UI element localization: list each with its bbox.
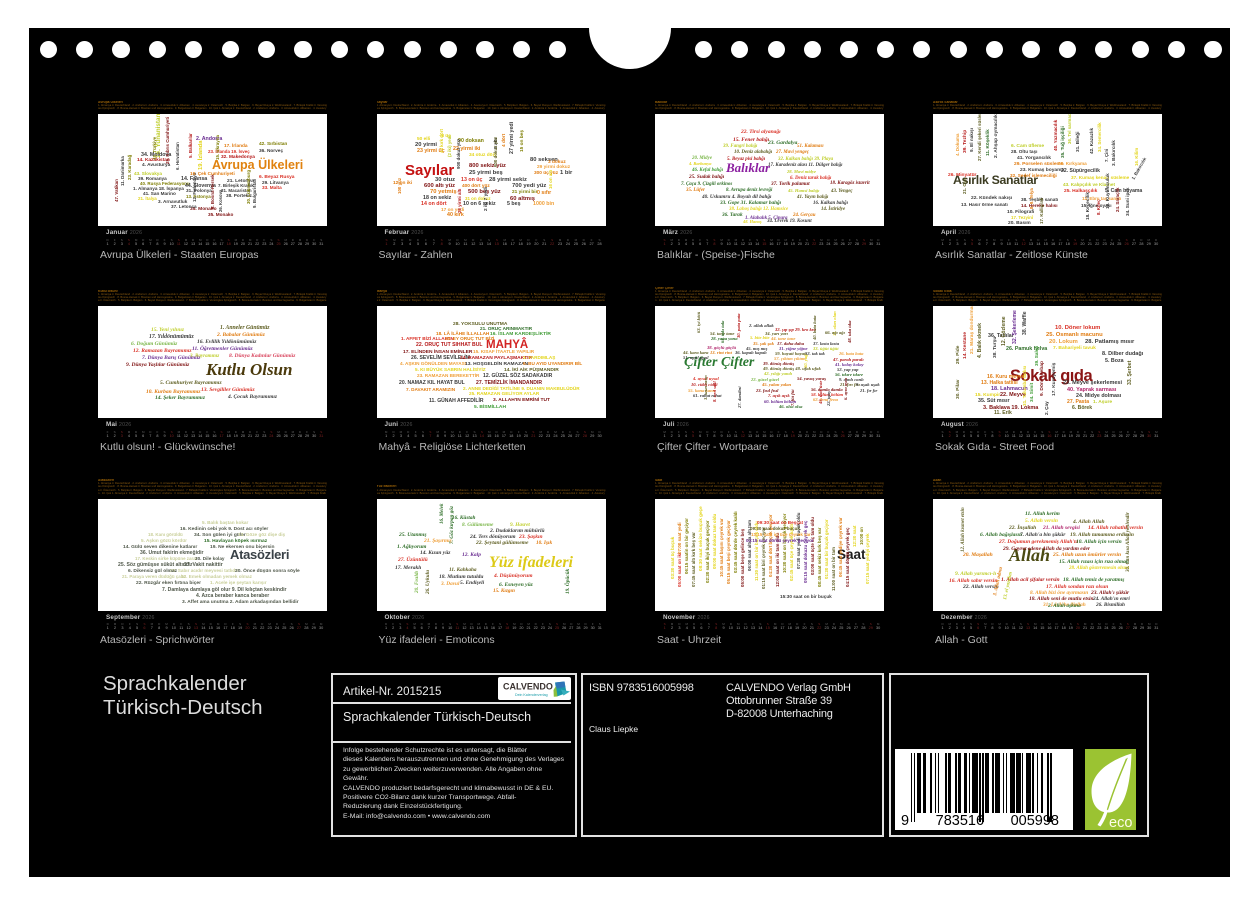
svg-text:2. Babalar Günümüz: 2. Babalar Günümüz <box>216 332 266 338</box>
svg-text:17. Tezyinî: 17. Tezyinî <box>1011 215 1034 220</box>
svg-text:7. füt füt: 7. füt füt <box>790 389 795 406</box>
svg-text:3. Affet ama unutma 2. Adam ar: 3. Affet ama unutma 2. Adam arkadaşından… <box>182 599 299 605</box>
svg-text:7. DAVAKIT ARAMIZIN: 7. DAVAKIT ARAMIZIN <box>406 387 456 392</box>
svg-text:34. Simit: 34. Simit <box>1029 383 1034 403</box>
svg-text:20. Fısıldı: 20. Fısıldı <box>414 570 420 593</box>
svg-text:44 kırk dört: 44 kırk dört <box>439 129 444 153</box>
svg-text:8. Dilber dudağı: 8. Dilber dudağı <box>1102 351 1144 357</box>
svg-text:25. Halkaşçılık: 25. Halkaşçılık <box>1064 188 1098 194</box>
svg-text:2. YARDIMLAŞ: 2. YARDIMLAŞ <box>523 355 555 360</box>
svg-text:08:30 saat sekize buçuk geçe: 08:30 saat sekize buçuk geçe <box>698 506 703 571</box>
svg-text:20. Lokum: 20. Lokum <box>1049 339 1078 345</box>
svg-text:40. bata bata: 40. bata bata <box>812 315 817 341</box>
svg-text:26. Pamuk helva: 26. Pamuk helva <box>1006 346 1047 352</box>
svg-text:06:15 saatin on bir geçiyor: 06:15 saatin on bir geçiyor <box>684 518 689 574</box>
svg-text:800 sekiz yüz: 800 sekiz yüz <box>469 163 506 169</box>
svg-text:31. Polonya: 31. Polonya <box>186 188 212 193</box>
svg-text:4. AŞKIN GÖNÜLDEN MAYASI: 4. AŞKIN GÖNÜLDEN MAYASI <box>400 360 466 366</box>
svg-text:19. Ne ekersen onu biçersin: 19. Ne ekersen onu biçersin <box>210 544 275 550</box>
svg-text:17. Kalligrafi: 17. Kalligrafi <box>1039 198 1044 224</box>
svg-text:700 yedi yüz: 700 yedi yüz <box>512 183 546 189</box>
svg-text:12. GÜZEL SÖZ SADAKADIR: 12. GÜZEL SÖZ SADAKADIR <box>483 372 553 379</box>
svg-text:12. Emek olmadan yemek olmaz: 12. Emek olmadan yemek olmaz <box>181 574 253 579</box>
svg-text:25 yirmi beş: 25 yirmi beş <box>469 170 503 176</box>
svg-text:35. Tuğ işçiliği: 35. Tuğ işçiliği <box>1060 126 1065 158</box>
svg-text:Yüz ifadeleri: Yüz ifadeleri <box>489 554 574 571</box>
svg-text:10. Deniz alabalığı: 10. Deniz alabalığı <box>734 150 773 155</box>
svg-text:7. Göz kırpan göz: 7. Göz kırpan göz <box>449 505 455 544</box>
svg-text:15. Havlayan köpek ısırmaz: 15. Havlayan köpek ısırmaz <box>204 538 268 544</box>
svg-text:30. Can kısa Allah yönlendir: 30. Can kısa Allah yönlendir <box>1125 512 1131 573</box>
svg-text:7. Çini: 7. Çini <box>1104 149 1109 162</box>
svg-text:2. Çay: 2. Çay <box>1044 401 1049 415</box>
svg-text:14. İKİ AİK PÜŞMANDIR: 14. İKİ AİK PÜŞMANDIR <box>504 366 559 373</box>
svg-text:17. Karadeniz alası 11. Dülger: 17. Karadeniz alası 11. Dülger balığı <box>768 163 843 168</box>
svg-text:eco: eco <box>1109 815 1132 830</box>
svg-text:100 yüz: 100 yüz <box>397 177 402 194</box>
svg-text:5. Cumhuriyet Bayramımız: 5. Cumhuriyet Bayramımız <box>160 380 222 386</box>
svg-text:16. Evlilik Yıldönümümüz: 16. Evlilik Yıldönümümüz <box>197 339 257 345</box>
svg-text:5. KI BÜYÜK SABRIN HALİSİYİZ: 5. KI BÜYÜK SABRIN HALİSİYİZ <box>415 366 486 372</box>
svg-text:32. Şekerleme: 32. Şekerleme <box>1012 310 1018 344</box>
svg-text:11. Köşeklik: 11. Köşeklik <box>985 129 990 156</box>
svg-text:39. Salep: 39. Salep <box>1034 346 1039 366</box>
svg-text:2. Allah aşkına: 2. Allah aşkına <box>1047 603 1081 609</box>
svg-text:9. Bulgaristan: 9. Bulgaristan <box>252 178 257 208</box>
svg-text:1000 bin: 1000 bin <box>533 201 554 207</box>
svg-text:39. Fangri balığı: 39. Fangri balığı <box>722 144 758 149</box>
svg-text:18. Kanı görüldü: 18. Kanı görüldü <box>148 532 183 537</box>
svg-text:47. Vatikan: 47. Vatikan <box>114 179 119 202</box>
svg-text:27. Doğumun gerekmemiş Allah't: 27. Doğumun gerekmemiş Allah'ta <box>998 539 1079 545</box>
svg-text:5. bite bite: 5. bite bite <box>750 335 770 340</box>
svg-text:11. Öğretmenler Günümüz: 11. Öğretmenler Günümüz <box>192 345 254 352</box>
svg-text:5. Endişeli: 5. Endişeli <box>460 580 485 586</box>
svg-text:30. pata pata: 30. pata pata <box>736 313 741 339</box>
svg-text:1. Acele işe şeytan karışır: 1. Acele işe şeytan karışır <box>210 580 267 585</box>
svg-text:4. Balık ekmek: 4. Balık ekmek <box>977 323 983 358</box>
svg-text:05:00 saat beşe gelince beş: 05:00 saat beşe gelince beş <box>740 528 745 587</box>
svg-text:26. Minyatür: 26. Minyatür <box>948 172 977 178</box>
svg-text:15 on beş: 15 on beş <box>519 130 525 152</box>
svg-text:12. Finlandiya: 12. Finlandiya <box>192 172 197 202</box>
svg-text:27. dandini: 27. dandini <box>737 386 742 409</box>
svg-text:38. Turşu: 38. Turşu <box>992 337 998 358</box>
svg-text:11. Danimarka: 11. Danimarka <box>120 156 125 186</box>
svg-text:01:30 saat bir buçuk geçiyor: 01:30 saat bir buçuk geçiyor <box>824 519 829 579</box>
svg-text:28. Patlamış mısır: 28. Patlamış mısır <box>1085 339 1135 345</box>
svg-text:22. Tirsi alyanağı: 22. Tirsi alyanağı <box>740 129 781 135</box>
svg-text:17. Yıldönümümüz: 17. Yıldönümümüz <box>149 334 194 340</box>
svg-text:4 dört: 4 dört <box>501 133 507 147</box>
svg-text:6. Doğum Günümüz: 6. Doğum Günümüz <box>131 341 178 347</box>
svg-text:14. Kestane: 14. Kestane <box>962 332 968 359</box>
svg-text:6. aynı aynı: 6. aynı aynı <box>843 378 848 401</box>
svg-text:9. Dünya Yaşlılar Günümüz: 9. Dünya Yaşlılar Günümüz <box>126 362 190 368</box>
svg-text:1. Anneler Günümüz: 1. Anneler Günümüz <box>220 325 270 331</box>
svg-text:40. Yazmacılık: 40. Yazmacılık <box>1053 119 1058 151</box>
svg-text:04:15 saat dördü çeyrek geç: 04:15 saat dördü çeyrek geç <box>845 527 850 587</box>
svg-text:23. Gardalya: 23. Gardalya <box>767 140 798 146</box>
svg-text:7. Dünya Barış Günümüz: 7. Dünya Barış Günümüz <box>142 355 201 361</box>
svg-text:64. takı takı: 64. takı takı <box>720 320 725 343</box>
svg-text:43. üste üste: 43. üste üste <box>818 381 823 405</box>
svg-text:8. Kileç: 8. Kileç <box>1096 199 1101 215</box>
svg-text:18. Karagöz istavrit: 18. Karagöz istavrit <box>830 181 870 186</box>
svg-text:21. fır fır: 21. fır fır <box>859 388 877 393</box>
svg-text:51. Kalaması: 51. Kalaması <box>797 144 824 149</box>
svg-text:24. Gerçau: 24. Gerçau <box>792 213 816 218</box>
svg-text:50 elli: 50 elli <box>417 136 430 142</box>
svg-text:34. Suni ipek: 34. Suni ipek <box>1125 187 1130 216</box>
svg-text:04:15 saat dördü çeyrek geçiyo: 04:15 saat dördü çeyrek geçiyor <box>746 538 814 543</box>
svg-text:30. Kırkyama: 30. Kırkyama <box>1058 161 1087 166</box>
svg-text:20. Maşallah: 20. Maşallah <box>962 552 993 558</box>
svg-text:20. Önce düşün sonra söyle: 20. Önce düşün sonra söyle <box>235 567 300 574</box>
svg-text:18. Allah temiz de yaratmış: 18. Allah temiz de yaratmış <box>1063 577 1124 583</box>
svg-text:32. Kalkan balığı 39. Playa: 32. Kalkan balığı 39. Playa <box>777 157 834 162</box>
svg-text:48. tıka tıka: 48. tıka tıka <box>847 320 852 344</box>
svg-text:27. Üzüntülü: 27. Üzüntülü <box>397 556 428 563</box>
svg-text:35. Monako: 35. Monako <box>208 212 234 217</box>
svg-text:14. Şeker Bayramımız: 14. Şeker Bayramımız <box>155 395 206 401</box>
svg-text:16 on altı: 16 on altı <box>548 170 553 189</box>
svg-text:2. Ahşap oymacılık: 2. Ahşap oymacılık <box>993 114 999 158</box>
svg-text:22. İnşallah: 22. İnşallah <box>1008 523 1036 531</box>
svg-text:28. Allah gösteremesin olsun: 28. Allah gösteremesin olsun <box>1068 565 1129 571</box>
svg-text:4. Düşünüyorum: 4. Düşünüyorum <box>493 573 533 579</box>
svg-text:31. Tulumba tatlısı: 31. Tulumba tatlısı <box>1022 366 1027 406</box>
svg-text:10:00 on: 10:00 on <box>859 527 864 545</box>
svg-text:16. Küstah: 16. Küstah <box>452 515 475 521</box>
svg-text:07:15 saat yediyi çeyrek: 07:15 saat yediyi çeyrek <box>865 533 870 584</box>
svg-text:20. Basım: 20. Basım <box>1008 220 1031 226</box>
svg-text:48. Hanoş: 48. Hanoş <box>742 219 762 224</box>
svg-text:1 bir: 1 bir <box>560 170 573 176</box>
svg-text:3. Bakırcılık: 3. Bakırcılık <box>1111 140 1116 166</box>
svg-text:09:30 saat on Beşçat: 09:30 saat on Beşçat <box>757 520 804 525</box>
svg-text:26. Uykulu: 26. Uykulu <box>425 570 431 595</box>
svg-text:20. NAMAZ KIL HAYAT BUL: 20. NAMAZ KIL HAYAT BUL <box>399 380 465 386</box>
svg-text:5 beş: 5 beş <box>507 201 521 207</box>
svg-text:13. rint rint: 13. rint rint <box>710 350 733 355</box>
svg-text:9. Döner kebap: 9. Döner kebap <box>1039 361 1045 396</box>
svg-text:8. sırıl sırıl: 8. sırıl sırıl <box>712 381 717 402</box>
svg-text:66. ağı ağı: 66. ağı ağı <box>825 330 846 335</box>
svg-text:16. İSLAM KARDEŞLİKTİR: 16. İSLAM KARDEŞLİKTİR <box>490 330 551 337</box>
svg-text:8. Avrupa deniz levreği: 8. Avrupa deniz levreği <box>726 188 773 193</box>
svg-text:37. Torik palamut: 37. Torik palamut <box>770 181 810 187</box>
svg-text:13. HOŞGELDİN RAMAZAN: 13. HOŞGELDİN RAMAZAN <box>465 360 529 367</box>
svg-text:27. Mavi yengeç: 27. Mavi yengeç <box>775 150 810 155</box>
svg-text:26. bata bata: 26. bata bata <box>838 351 864 356</box>
svg-text:19. Kuyumculuk: 19. Kuyumculuk <box>1105 173 1110 209</box>
svg-text:26. Bismillah: 26. Bismillah <box>1095 602 1125 608</box>
svg-text:10:45 saat başını çeyrek var: 10:45 saat başını çeyrek var <box>719 518 724 577</box>
svg-text:25. Sudak balığı: 25. Sudak balığı <box>688 174 725 180</box>
svg-text:33. Malta: 33. Malta <box>262 185 282 190</box>
svg-text:15. KISAF İTAATLE YAPILIR: 15. KISAF İTAATLE YAPILIR <box>473 348 535 354</box>
svg-text:3. Davul: 3. Davul <box>440 581 460 587</box>
svg-text:19. İzlanda: 19. İzlanda <box>197 140 204 170</box>
svg-text:14. Kızan yüz: 14. Kızan yüz <box>420 550 451 556</box>
svg-text:32. Sedef işlemeciliği: 32. Sedef işlemeciliği <box>1010 173 1057 178</box>
svg-text:02:30 saat ikiyi buçuk geçiyor: 02:30 saat ikiyi buçuk geçiyor <box>705 520 710 583</box>
svg-text:2. allak allak: 2. allak allak <box>748 323 774 328</box>
svg-text:16. Melek: 16. Melek <box>439 503 445 524</box>
svg-text:34. Levrek 19. Kosunt: 34. Levrek 19. Kosunt <box>766 219 812 224</box>
svg-text:25. Osmanlı macunu: 25. Osmanlı macunu <box>1046 332 1103 338</box>
svg-text:4. Azca beraber kanca beraber: 4. Azca beraber kanca beraber <box>196 593 269 599</box>
svg-text:36. Tel sarmacılığı: 36. Tel sarmacılığı <box>1067 114 1072 144</box>
svg-text:13:15 saat içi üçe çeyrek var: 13:15 saat içi üçe çeyrek var <box>751 532 811 537</box>
svg-text:2. ANNE DEDİĞİ TATİLİNE 9. DUA: 2. ANNE DEDİĞİ TATİLİNE 9. DUANIN MAKBUL… <box>463 384 580 391</box>
svg-text:13 on üç: 13 on üç <box>461 177 483 183</box>
svg-text:17. Meraklı: 17. Meraklı <box>395 565 422 571</box>
svg-text:11. Kahkaha: 11. Kahkaha <box>449 567 477 573</box>
svg-text:21. Maraş dondurması: 21. Maraş dondurması <box>969 306 975 354</box>
svg-text:Dein Kalenderverlag: Dein Kalenderverlag <box>515 693 548 697</box>
svg-text:5. Cam boyama: 5. Cam boyama <box>1105 188 1142 194</box>
svg-text:51. upul upul: 51. upul upul <box>683 355 709 360</box>
svg-text:03:30 saat üç buçuk: 03:30 saat üç buçuk <box>670 536 675 579</box>
svg-text:600 dokuz yüz: 600 dokuz yüz <box>493 136 498 167</box>
svg-text:21. Allah sevgisi: 21. Allah sevgisi <box>1042 525 1080 531</box>
svg-text:36. kapalı kapalı: 36. kapalı kapalı <box>734 350 767 355</box>
svg-text:900 dokuz yüz: 900 dokuz yüz <box>456 138 461 169</box>
svg-text:5. BİSMİLLAH: 5. BİSMİLLAH <box>474 403 506 410</box>
svg-text:28. Mavi midye: 28. Mavi midye <box>786 169 816 174</box>
svg-text:5. Beyaz pisi balığı: 5. Beyaz pisi balığı <box>727 157 766 162</box>
svg-text:31. Bileği: 31. Bileği <box>1075 132 1080 152</box>
svg-text:4. Dokuma: 4. Dokuma <box>955 133 960 156</box>
svg-text:32. Makedonya: 32. Makedonya <box>221 154 255 160</box>
svg-text:6. Börek: 6. Börek <box>1072 405 1092 411</box>
svg-text:36. Norveç: 36. Norveç <box>259 148 283 154</box>
svg-text:16. Kilim: 16. Kilim <box>1134 148 1139 166</box>
svg-text:5. Boza: 5. Boza <box>1105 358 1124 364</box>
svg-text:6. Hırvatistan: 6. Hırvatistan <box>175 142 180 170</box>
svg-text:07:45 saat altı kırk beş var: 07:45 saat altı kırk beş var <box>691 532 696 587</box>
svg-text:22. tıpış: 22. tıpış <box>826 391 831 407</box>
svg-text:23. RAMAZAN BEREKETTİR: 23. RAMAZAN BEREKETTİR <box>417 372 480 378</box>
svg-text:42. yılığı yandı: 42. yılığı yandı <box>763 371 793 376</box>
svg-text:15. Kızgın: 15. Kızgın <box>493 588 515 594</box>
svg-text:21. Paraya veren düdüğü çalar: 21. Paraya veren düdüğü çalar <box>122 574 186 579</box>
svg-text:41. Yayın balığı: 41. Yayın balığı <box>796 195 829 200</box>
svg-text:25. Kıbrıs Cumhuriyeti: 25. Kıbrıs Cumhuriyeti <box>165 117 170 164</box>
svg-text:03:45 saat dörde çeyrek kaldı: 03:45 saat dörde çeyrek kaldı <box>733 511 738 573</box>
svg-text:7. Çaça 9. Çizgili orkinos: 7. Çaça 9. Çizgili orkinos <box>681 182 732 187</box>
svg-text:10. Allah için versin: 10. Allah için versin <box>1076 539 1122 545</box>
svg-text:12 on iki: 12 on iki <box>393 180 412 186</box>
svg-text:07:00 saat yedi: 07:00 saat yedi <box>677 522 682 554</box>
svg-text:17. Keskin sirke küpüne zarar: 17. Keskin sirke küpüne zarar <box>135 556 198 561</box>
svg-text:30. EY ORUÇ TUT BİZİ: 30. EY ORUÇ TUT BİZİ <box>445 335 494 341</box>
svg-text:52. tak tak: 52. tak tak <box>805 351 826 356</box>
svg-text:4. Barbunya: 4. Barbunya <box>688 161 712 166</box>
svg-text:36. Tarak: 36. Tarak <box>721 212 743 218</box>
svg-text:45. yalan yalan: 45. yalan yalan <box>761 382 792 387</box>
svg-text:7. açık açık: 7. açık açık <box>768 393 790 398</box>
svg-text:14. İstiridye: 14. İstiridye <box>821 206 846 212</box>
svg-text:09:00 saat dokuz tam oldu: 09:00 saat dokuz tam oldu <box>712 513 717 569</box>
svg-text:63. iyi kötü: 63. iyi kötü <box>696 312 701 334</box>
svg-text:12. Allah kısmet etsin: 12. Allah kısmet etsin <box>960 507 966 552</box>
svg-text:28. Oltu taşı: 28. Oltu taşı <box>1011 149 1037 154</box>
svg-text:35. Lüfer: 35. Lüfer <box>685 188 705 193</box>
svg-text:5. Aşkın gözü kördür: 5. Aşkın gözü kördür <box>141 538 187 543</box>
svg-text:45. Türkiye: 45. Türkiye <box>152 136 157 160</box>
svg-text:35. Süt mısır: 35. Süt mısır <box>978 398 1010 404</box>
svg-text:5. Allah versin: 5. Allah versin <box>1025 518 1058 524</box>
svg-text:16. Kalkan balığı: 16. Kalkan balığı <box>813 201 849 206</box>
svg-text:22. Şeytani gülümseme: 22. Şeytani gülümseme <box>475 540 529 546</box>
svg-text:3. uzun uzun: 3. uzun uzun <box>703 375 708 401</box>
svg-text:11. GÜNAH AFFEDİLİR: 11. GÜNAH AFFEDİLİR <box>429 397 484 404</box>
svg-text:12. Ramazan Bayramımız: 12. Ramazan Bayramımız <box>133 348 192 354</box>
svg-text:7. Allah'a bin şükür: 7. Allah'a bin şükür <box>1020 532 1066 538</box>
svg-text:9. uşak uşak: 9. uşak uşak <box>856 382 880 387</box>
svg-text:22. Rüzgâr eken fırtına biçer: 22. Rüzgâr eken fırtına biçer <box>136 580 201 586</box>
svg-text:27. TEMİZLİK İMANDANDIR: 27. TEMİZLİK İMANDANDIR <box>476 379 542 386</box>
svg-text:CALVENDO: CALVENDO <box>503 682 553 692</box>
svg-text:12. Kalp: 12. Kalp <box>462 552 481 558</box>
svg-text:37. Kumaş kenarı süsleme: 37. Kumaş kenarı süsleme <box>1071 175 1130 180</box>
svg-text:39. Tezhip: 39. Tezhip <box>962 130 968 153</box>
svg-text:41. Yorgancılık: 41. Yorgancılık <box>1017 155 1051 161</box>
svg-text:Kutlu Olsun: Kutlu Olsun <box>205 360 292 379</box>
svg-text:15. Fener balığı: 15. Fener balığı <box>733 137 770 143</box>
svg-text:26 yirmi altı: 26 yirmi altı <box>457 189 462 213</box>
svg-text:14 on dört: 14 on dört <box>421 201 447 207</box>
svg-text:17. İrlanda: 17. İrlanda <box>224 142 248 149</box>
svg-text:33. Gope 31. Kalamar balığı: 33. Gope 31. Kalamar balığı <box>719 200 782 206</box>
svg-text:05:00 saat on iki: 05:00 saat on iki <box>677 553 682 587</box>
svg-text:8. 9. Telya: 8. 9. Telya <box>1029 188 1034 209</box>
svg-text:13. Göze göz dişe diş: 13. Göze göz dişe diş <box>238 532 286 537</box>
svg-text:14. Allah rahatlık versin: 14. Allah rahatlık versin <box>1088 525 1143 531</box>
svg-text:17. Kuruyemiş: 17. Kuruyemiş <box>1051 363 1057 397</box>
svg-text:11. Erik: 11. Erik <box>994 410 1012 416</box>
svg-text:10 on 6 sekiz: 10 on 6 sekiz <box>463 201 496 207</box>
svg-text:10. Işık: 10. Işık <box>536 540 552 546</box>
svg-text:19. Öpücük: 19. Öpücük <box>564 568 571 594</box>
svg-text:23. Meyve şekerlemesi: 23. Meyve şekerlemesi <box>1063 380 1122 386</box>
svg-text:09:30 saat dokuz buçuk: 09:30 saat dokuz buçuk <box>750 526 800 531</box>
svg-text:18. Keçecilik: 18. Keçecilik <box>1085 192 1090 220</box>
svg-text:09:15 saat dokuzu çeyrek geç: 09:15 saat dokuzu çeyrek geç <box>803 520 808 583</box>
svg-text:4. Çocuk Bayramımız: 4. Çocuk Bayramımız <box>227 394 278 400</box>
svg-text:30. Lüksemburg: 30. Lüksemburg <box>246 170 251 204</box>
svg-text:54. yavaş yavaş: 54. yavaş yavaş <box>797 376 826 381</box>
svg-text:21. Şaşırmış: 21. Şaşırmış <box>423 538 452 544</box>
svg-text:21. İtalya: 21. İtalya <box>138 195 157 201</box>
svg-text:12. Gözleme: 12. Gözleme <box>1001 317 1007 347</box>
svg-text:22. ORUÇ TUT SIHHAT BUL: 22. ORUÇ TUT SIHHAT BUL <box>416 342 483 348</box>
svg-text:30. Pilav: 30. Pilav <box>955 380 961 400</box>
svg-text:10. Çek Cumhuriyeti: 10. Çek Cumhuriyeti <box>190 171 235 176</box>
svg-text:11. Allah kerim: 11. Allah kerim <box>1025 511 1061 517</box>
svg-text:05:15 saat beşi çeyrek geçiyor: 05:15 saat beşi çeyrek geçiyor <box>726 520 731 584</box>
svg-text:21 yirmi bir: 21 yirmi bir <box>512 189 538 195</box>
svg-text:12:30 saat: 12:30 saat <box>852 525 857 547</box>
svg-text:42. Sırbistan: 42. Sırbistan <box>259 141 287 147</box>
svg-text:33. Şerbet: 33. Şerbet <box>1127 361 1133 386</box>
svg-text:13. Hasır örme sanatı: 13. Hasır örme sanatı <box>961 202 1008 207</box>
svg-text:6. Allah bağışlasın: 6. Allah bağışlasın <box>980 532 1022 538</box>
svg-text:24. Saraçlık: 24. Saraçlık <box>1115 187 1120 212</box>
svg-text:03:00 saat üçte üç tam oldu: 03:00 saat üçte üç tam oldu <box>810 517 815 575</box>
svg-text:15. Yeni yılınız: 15. Yeni yılınız <box>151 327 185 333</box>
svg-text:10. Döner lokum: 10. Döner lokum <box>1055 325 1100 331</box>
svg-text:27 yirmi yedi: 27 yirmi yedi <box>509 121 515 154</box>
svg-text:27. Kendi şekeri süslemeciliği: 27. Kendi şekeri süslemeciliği <box>977 114 982 161</box>
svg-text:5. Balık baştan kokar: 5. Balık baştan kokar <box>202 520 249 525</box>
svg-text:9. El nakışı: 9. El nakışı <box>969 128 974 152</box>
svg-text:9. Allah yarımcı-lı: 9. Allah yarımcı-lı <box>955 571 997 577</box>
svg-text:6. BU AYID UYANDIRIR BİL: 6. BU AYID UYANDIRIR BİL <box>523 360 582 366</box>
svg-text:29. Porselen süsleme: 29. Porselen süsleme <box>1014 161 1064 167</box>
svg-text:1. Aşure: 1. Aşure <box>1093 399 1112 405</box>
svg-text:06:45 saat yediye çeyrek var: 06:45 saat yediye çeyrek var <box>838 517 843 577</box>
svg-text:38. Waffle: 38. Waffle <box>1022 312 1028 336</box>
svg-text:(2 iki) yedi: (2 iki) yedi <box>447 135 452 157</box>
svg-text:42. Kazazlık: 42. Kazazlık <box>1089 127 1094 154</box>
svg-text:43. Yengeç: 43. Yengeç <box>830 189 853 194</box>
svg-text:08:45 saat sekiz kırk beş var: 08:45 saat sekiz kırk beş var <box>817 527 822 587</box>
svg-text:300 üç yüz: 300 üç yüz <box>534 170 559 176</box>
svg-text:22. Süpürgecilik: 22. Süpürgecilik <box>1061 168 1100 174</box>
svg-text:25. RAMAZAN GELİYOR AYLAR: 25. RAMAZAN GELİYOR AYLAR <box>469 390 540 396</box>
svg-text:8. Dünya Kadınlar Günümüz: 8. Dünya Kadınlar Günümüz <box>229 353 296 359</box>
svg-text:2 iki 7 yedi: 2 iki 7 yedi <box>483 187 489 211</box>
svg-text:11:00 saat on bir tam: 11:00 saat on bir tam <box>831 547 836 591</box>
svg-text:17. ELİNDEN İNSAN EMİNLER: 17. ELİNDEN İNSAN EMİNLER <box>403 348 473 355</box>
svg-text:29. Pide: 29. Pide <box>955 346 961 365</box>
svg-text:90 doksan: 90 doksan <box>458 138 484 144</box>
svg-text:24. RAMAZAN PAYLAŞMAKTIR: 24. RAMAZAN PAYLAŞMAKTIR <box>460 355 533 361</box>
svg-text:37. Letonca: 37. Letonca <box>171 204 197 209</box>
svg-text:5. Balkanlar: 5. Balkanlar <box>188 133 193 158</box>
svg-text:34. Semercilik: 34. Semercilik <box>1097 122 1102 152</box>
svg-text:25. Allah uzun ömürler versin: 25. Allah uzun ömürler versin <box>1052 552 1121 558</box>
svg-text:15:30 saat on bir buçuk: 15:30 saat on bir buçuk <box>780 594 832 599</box>
svg-text:45. Hamsi balığı: 45. Hamsi balığı <box>787 188 820 193</box>
svg-text:7. Bahariyeli tavuk: 7. Bahariyeli tavuk <box>1053 345 1096 351</box>
svg-text:21. Oya: 21. Oya <box>962 178 967 194</box>
svg-text:25. Utanmış: 25. Utanmış <box>398 532 427 538</box>
svg-text:46. Kefal balığı: 46. Kefal balığı <box>691 168 724 173</box>
svg-text:13. Estonya: 13. Estonya <box>186 194 211 199</box>
svg-text:13. el yazalım: 13. el yazalım <box>1002 571 1014 600</box>
svg-text:50. yağ: 50. yağ <box>803 354 808 368</box>
svg-text:13. Sevgililer Günümüz: 13. Sevgililer Günümüz <box>201 387 255 393</box>
svg-text:15. Ukrayna: 15. Ukrayna <box>215 135 220 160</box>
svg-text:23. Karadağ: 23. Karadağ <box>127 155 132 180</box>
svg-text:22. Kündek nakışı: 22. Kündek nakışı <box>971 195 1013 201</box>
svg-text:0 sıfır: 0 sıfır <box>537 190 551 196</box>
svg-text:3. ALLAH'IN EMRİNİ TUT: 3. ALLAH'IN EMRİNİ TUT <box>493 396 550 403</box>
svg-text:30. Dile kolay: 30. Dile kolay <box>195 556 225 561</box>
svg-text:Balıklar: Balıklar <box>725 160 771 175</box>
svg-text:8. Bosna-Hersek: 8. Bosna-Hersek <box>210 174 215 209</box>
svg-text:29. Sabır acıdır meyvesi tatlı: 29. Sabır acıdır meyvesi tatlıdır <box>170 568 239 573</box>
